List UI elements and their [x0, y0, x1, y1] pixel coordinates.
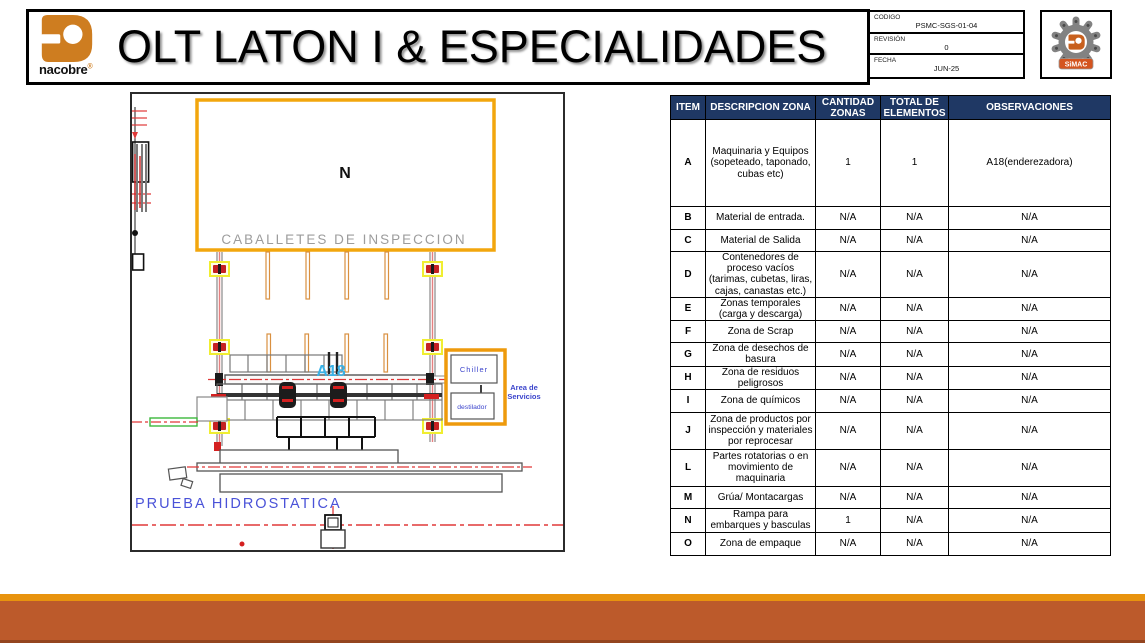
cell-item: H	[671, 366, 706, 389]
footer-bar	[0, 601, 1145, 643]
cell-cant: N/A	[816, 389, 881, 412]
caballetes-label: CABALLETES DE INSPECCION	[221, 232, 466, 247]
table-row: F Zona de Scrap N/A N/A N/A	[671, 321, 1111, 343]
layout-drawing: N CABALLETES DE INSPECCION	[130, 92, 565, 552]
table-row: M Grúa/ Montacargas N/A N/A N/A	[671, 486, 1111, 508]
cell-item: M	[671, 486, 706, 508]
cell-cant: N/A	[816, 321, 881, 343]
cell-cant: N/A	[816, 343, 881, 366]
cell-obs: N/A	[949, 343, 1111, 366]
cell-obs: N/A	[949, 412, 1111, 449]
cad-hydro-bars	[168, 450, 532, 492]
cell-desc: Zona de desechos de basura	[706, 343, 816, 366]
code-value: PSMC-SGS-01-04	[870, 21, 1023, 30]
code-value: JUN-25	[870, 64, 1023, 73]
table-row: O Zona de empaque N/A N/A N/A	[671, 532, 1111, 555]
cell-desc: Grúa/ Montacargas	[706, 486, 816, 508]
cell-item: C	[671, 230, 706, 252]
zones-table-header: ITEM DESCRIPCION ZONA CANTIDAD ZONAS TOT…	[671, 96, 1111, 120]
table-row: B Material de entrada. N/A N/A N/A	[671, 207, 1111, 230]
cell-item: E	[671, 297, 706, 320]
table-row: L Partes rotatorias o en movimiento de m…	[671, 449, 1111, 486]
cell-obs: N/A	[949, 230, 1111, 252]
cell-total: N/A	[881, 532, 949, 555]
cell-total: N/A	[881, 207, 949, 230]
cell-obs: N/A	[949, 449, 1111, 486]
svg-text:Servicios: Servicios	[507, 392, 540, 401]
cell-total: N/A	[881, 486, 949, 508]
code-value: 0	[870, 43, 1023, 52]
code-row-codigo: CODIGO PSMC-SGS-01-04	[870, 12, 1023, 34]
cell-obs: N/A	[949, 508, 1111, 532]
cell-total: N/A	[881, 230, 949, 252]
cell-total: N/A	[881, 412, 949, 449]
table-row: G Zona de desechos de basura N/A N/A N/A	[671, 343, 1111, 366]
cell-total: 1	[881, 120, 949, 207]
cell-item: I	[671, 389, 706, 412]
cell-cant: N/A	[816, 252, 881, 298]
cell-desc: Zona de residuos peligrosos	[706, 366, 816, 389]
cell-desc: Material de entrada.	[706, 207, 816, 230]
table-row: J Zona de productos por inspección y mat…	[671, 412, 1111, 449]
cad-orange-ticks	[266, 252, 389, 372]
cell-cant: N/A	[816, 297, 881, 320]
slide: nacobre® OLT LATON I & ESPECIALIDADES CO…	[0, 0, 1145, 643]
cell-desc: Material de Salida	[706, 230, 816, 252]
cell-item: B	[671, 207, 706, 230]
zones-table: ITEM DESCRIPCION ZONA CANTIDAD ZONAS TOT…	[670, 95, 1111, 556]
cell-desc: Rampa para embarques y basculas	[706, 508, 816, 532]
cell-cant: N/A	[816, 449, 881, 486]
cell-total: N/A	[881, 449, 949, 486]
cell-cant: 1	[816, 508, 881, 532]
col-item: ITEM	[671, 96, 706, 120]
cell-total: N/A	[881, 252, 949, 298]
cad-green-fixture	[132, 418, 198, 426]
cell-obs: N/A	[949, 486, 1111, 508]
cell-desc: Zona de productos por inspección y mater…	[706, 412, 816, 449]
code-label: REVISIÓN	[874, 36, 905, 43]
services-area: Chiller destilador Area de Servicios	[446, 350, 541, 424]
code-row-revision: REVISIÓN 0	[870, 34, 1023, 56]
cell-item: D	[671, 252, 706, 298]
table-row: D Contenedores de proceso vacíos (tarima…	[671, 252, 1111, 298]
cad-left-fixtures	[132, 107, 151, 270]
cell-total: N/A	[881, 321, 949, 343]
brand-logo: nacobre®	[38, 13, 118, 79]
cell-obs: N/A	[949, 252, 1111, 298]
code-row-fecha: FECHA JUN-25	[870, 55, 1023, 77]
col-total: TOTAL DE ELEMENTOS	[881, 96, 949, 120]
cell-obs: N/A	[949, 321, 1111, 343]
code-label: FECHA	[874, 57, 896, 64]
cell-cant: N/A	[816, 207, 881, 230]
cell-cant: N/A	[816, 366, 881, 389]
cell-desc: Contenedores de proceso vacíos (tarimas,…	[706, 252, 816, 298]
cell-cant: N/A	[816, 486, 881, 508]
table-row: A Maquinaria y Equipos (sopeteado, tapon…	[671, 120, 1111, 207]
nacobre-c-icon	[40, 15, 94, 62]
page-title: OLT LATON I & ESPECIALIDADES	[117, 16, 857, 78]
header-title-box: nacobre® OLT LATON I & ESPECIALIDADES	[26, 9, 870, 85]
brand-trademark: ®	[87, 64, 92, 71]
cell-desc: Zona de empaque	[706, 532, 816, 555]
cell-obs: N/A	[949, 297, 1111, 320]
cell-item: L	[671, 449, 706, 486]
cell-item: A	[671, 120, 706, 207]
simac-logo-box: SiMAC	[1040, 10, 1112, 79]
code-table: CODIGO PSMC-SGS-01-04 REVISIÓN 0 FECHA J…	[868, 10, 1025, 79]
cell-total: N/A	[881, 343, 949, 366]
table-row: C Material de Salida N/A N/A N/A	[671, 230, 1111, 252]
cell-cant: N/A	[816, 230, 881, 252]
cell-desc: Zonas temporales (carga y descarga)	[706, 297, 816, 320]
col-descripcion: DESCRIPCION ZONA	[706, 96, 816, 120]
cad-bottom-fixture	[132, 506, 563, 549]
cell-desc: Zona de Scrap	[706, 321, 816, 343]
cell-item: O	[671, 532, 706, 555]
cell-item: F	[671, 321, 706, 343]
footer-accent-strip	[0, 594, 1145, 601]
table-row: E Zonas temporales (carga y descarga) N/…	[671, 297, 1111, 320]
cell-total: N/A	[881, 366, 949, 389]
prueba-hidrostatica-label: PRUEBA HIDROSTATICA	[135, 496, 342, 512]
north-label: N	[339, 165, 351, 182]
code-label: CODIGO	[874, 14, 900, 21]
cell-desc: Partes rotatorias o en movimiento de maq…	[706, 449, 816, 486]
cell-obs: N/A	[949, 389, 1111, 412]
cell-cant: N/A	[816, 532, 881, 555]
col-observaciones: OBSERVACIONES	[949, 96, 1111, 120]
col-cantidad: CANTIDAD ZONAS	[816, 96, 881, 120]
cell-item: G	[671, 343, 706, 366]
machine-a18-label: A18	[316, 363, 345, 380]
cell-obs: A18(enderezadora)	[949, 120, 1111, 207]
simac-gear-icon: SiMAC	[1046, 15, 1106, 75]
destilador-label: destilador	[457, 404, 487, 411]
brand-name: nacobre®	[39, 62, 92, 77]
table-row: H Zona de residuos peligrosos N/A N/A N/…	[671, 366, 1111, 389]
cell-cant: 1	[816, 120, 881, 207]
svg-text:Area de: Area de	[510, 383, 538, 392]
cell-total: N/A	[881, 297, 949, 320]
cell-total: N/A	[881, 389, 949, 412]
cell-desc: Maquinaria y Equipos (sopeteado, taponad…	[706, 120, 816, 207]
table-row: I Zona de químicos N/A N/A N/A	[671, 389, 1111, 412]
table-row: N Rampa para embarques y basculas 1 N/A …	[671, 508, 1111, 532]
cell-obs: N/A	[949, 366, 1111, 389]
cell-item: N	[671, 508, 706, 532]
cell-item: J	[671, 412, 706, 449]
area-servicios-label: Area de Servicios	[507, 383, 540, 401]
cad-plan-svg: N CABALLETES DE INSPECCION	[132, 94, 563, 550]
chiller-label: Chiller	[460, 365, 488, 374]
cell-obs: N/A	[949, 207, 1111, 230]
cell-total: N/A	[881, 508, 949, 532]
cell-obs: N/A	[949, 532, 1111, 555]
cell-cant: N/A	[816, 412, 881, 449]
cell-desc: Zona de químicos	[706, 389, 816, 412]
simac-badge-label: SiMAC	[1065, 62, 1088, 69]
